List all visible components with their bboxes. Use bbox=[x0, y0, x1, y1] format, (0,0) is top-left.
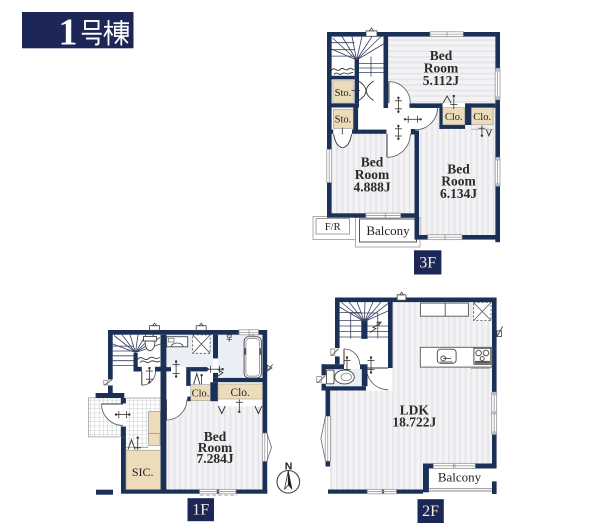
svg-text:6.134J: 6.134J bbox=[440, 186, 477, 201]
svg-text:F/R: F/R bbox=[325, 222, 341, 233]
svg-text:Clo.: Clo. bbox=[445, 112, 463, 123]
svg-text:1F: 1F bbox=[192, 502, 209, 519]
svg-text:Clo.: Clo. bbox=[473, 112, 491, 123]
svg-text:Balcony: Balcony bbox=[366, 223, 410, 238]
svg-text:Clo.: Clo. bbox=[230, 387, 250, 399]
svg-text:18.722J: 18.722J bbox=[392, 415, 436, 430]
svg-text:1: 1 bbox=[59, 12, 78, 54]
svg-text:Sto.: Sto. bbox=[335, 114, 352, 125]
svg-text:Balcony: Balcony bbox=[438, 470, 482, 485]
svg-text:3F: 3F bbox=[419, 255, 436, 272]
svg-text:5.112J: 5.112J bbox=[423, 73, 460, 88]
svg-text:Sto.: Sto. bbox=[335, 88, 352, 99]
svg-text:N: N bbox=[285, 460, 293, 472]
svg-text:7.284J: 7.284J bbox=[196, 451, 233, 466]
svg-text:4.888J: 4.888J bbox=[353, 179, 390, 194]
svg-text:Clo.: Clo. bbox=[192, 388, 210, 399]
svg-text:2F: 2F bbox=[422, 503, 439, 520]
svg-text:SIC.: SIC. bbox=[132, 465, 154, 479]
